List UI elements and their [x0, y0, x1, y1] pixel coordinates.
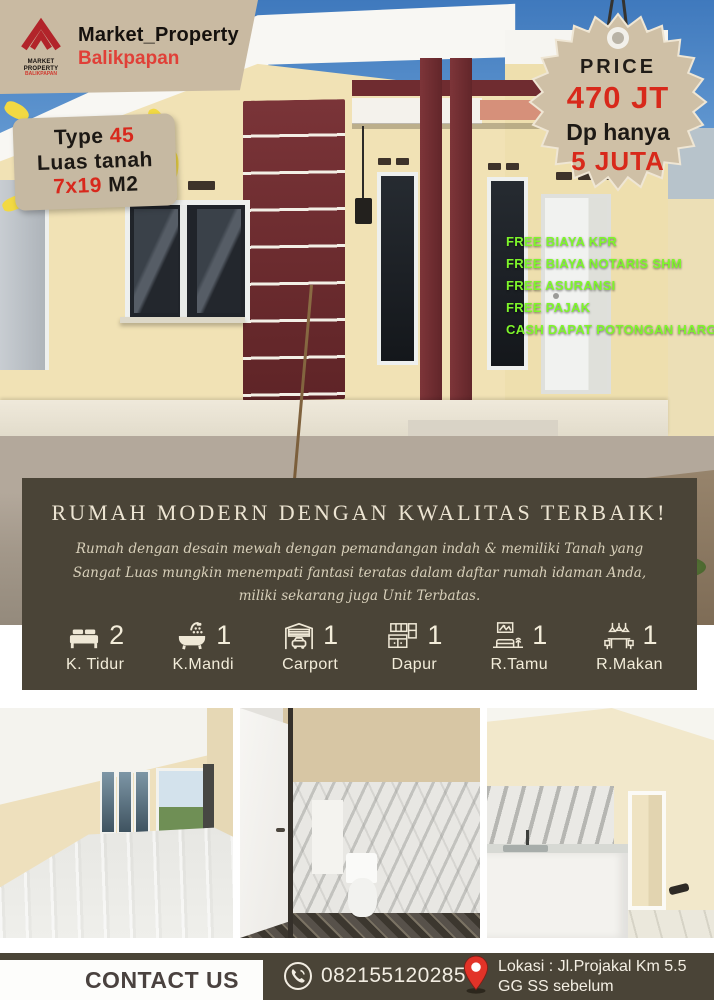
type-label: Type [54, 124, 111, 149]
feature-label: K. Tidur [66, 656, 124, 674]
brand-title: Market_Property [78, 24, 239, 47]
kitchen-photo [487, 708, 714, 938]
brand-logo-plate: MARKET PROPERTY BALIKPAPAN Market_Proper… [0, 0, 258, 94]
phone-row: 082155120285 [283, 961, 466, 991]
wall-panel [312, 800, 343, 874]
electric-meter [355, 198, 372, 224]
vent [378, 158, 391, 165]
door-handle [276, 828, 285, 832]
living-room-photo [0, 708, 233, 938]
window-sill [120, 317, 245, 323]
marble-backsplash [487, 786, 614, 846]
location-line-2: GG SS sebelum [498, 977, 687, 997]
living-room-icon [491, 621, 525, 651]
window [134, 770, 150, 834]
carport-icon [282, 621, 316, 651]
features-row: 2 K. Tidur [66, 620, 663, 674]
free-item: FREE BIAYA NOTARIS SHM [506, 256, 714, 271]
feature-label: R.Makan [596, 656, 663, 674]
feature-label: K.Mandi [172, 656, 234, 674]
dining-room-icon [602, 621, 636, 651]
feature-living-room: 1 R.Tamu [490, 620, 548, 674]
phone-number: 082155120285 [321, 964, 466, 988]
description: Rumah dengan desain mewah dengan pemanda… [60, 538, 659, 609]
wall-plinth [0, 400, 668, 436]
maroon-pillar [420, 58, 442, 410]
feature-count: 2 [109, 620, 124, 651]
feature-label: R.Tamu [490, 656, 548, 674]
feature-carport: 1 Carport [282, 620, 338, 674]
feature-kitchen: 1 Dapur [386, 620, 442, 674]
toilet-bowl [348, 878, 377, 917]
price-label: PRICE [528, 56, 708, 79]
free-item: FREE BIAYA KPR [506, 234, 714, 249]
vent [506, 163, 519, 170]
free-item: FREE ASURANSI [506, 278, 714, 293]
window-pane [134, 209, 178, 313]
feature-count: 1 [532, 620, 547, 651]
location-pin-icon [462, 954, 490, 994]
headline: RUMAH MODERN DENGAN KWALITAS TERBAIK! [22, 500, 697, 526]
land-unit: M2 [102, 173, 139, 197]
slippers [668, 883, 690, 896]
window [100, 770, 116, 834]
price-value: 470 JT [528, 80, 708, 116]
vent [396, 158, 409, 165]
type-badge: Type 45 Luas tanah 7x19 M2 [12, 113, 177, 211]
vent [488, 163, 501, 170]
contact-heading: CONTACT US [85, 967, 239, 994]
location-row: Lokasi : Jl.Projakal Km 5.5 GG SS sebelu… [462, 954, 687, 998]
bed-icon [66, 621, 102, 651]
flyer-page: MARKET PROPERTY BALIKPAPAN Market_Proper… [0, 0, 714, 1000]
price-badge: PRICE 470 JT Dp hanya 5 JUTA [528, 12, 708, 196]
headline-panel: RUMAH MODERN DENGAN KWALITAS TERBAIK! Ru… [22, 478, 697, 690]
interior-photos-row [0, 708, 714, 938]
doorway [628, 791, 667, 911]
phone-icon [283, 961, 313, 991]
contact-bar: CONTACT US 082155120285 Lokasi : Jl.Proj… [0, 953, 714, 1000]
feature-dining-room: 1 R.Makan [596, 620, 663, 674]
house-roof-logo-icon [16, 16, 66, 54]
bathroom-door [240, 708, 288, 938]
vent [188, 181, 215, 190]
feature-label: Dapur [392, 656, 438, 674]
feature-count: 1 [643, 620, 658, 651]
feature-count: 1 [216, 620, 231, 651]
kitchen-sink [503, 845, 548, 852]
window-pane [197, 209, 241, 313]
brand-subtitle: Balikpapan [78, 48, 239, 70]
free-item: CASH DAPAT POTONGAN HARGA & BONUS MENARI… [506, 322, 714, 337]
feature-bedrooms: 2 K. Tidur [66, 620, 124, 674]
type-value: 45 [109, 123, 134, 147]
window [117, 770, 133, 834]
ceiling [487, 708, 714, 754]
window-mullion [180, 205, 187, 317]
maroon-accent-panel [243, 99, 345, 401]
door-gap [288, 708, 293, 938]
maroon-pillar [450, 58, 472, 410]
kitchen-icon [386, 621, 420, 651]
tall-window [377, 172, 418, 365]
feature-label: Carport [282, 656, 338, 674]
logo-caption-sub: BALIKPAPAN [10, 72, 72, 78]
free-benefits-list: FREE BIAYA KPR FREE BIAYA NOTARIS SHM FR… [506, 234, 714, 344]
dp-label: Dp hanya [528, 119, 708, 146]
front-window-pair [125, 200, 250, 322]
counter-front [487, 853, 628, 938]
electric-cable [362, 126, 364, 200]
upper-wall [283, 708, 480, 782]
contact-heading-box: CONTACT US [0, 960, 263, 1000]
bathroom-photo [240, 708, 480, 938]
bath-icon [175, 621, 209, 651]
feature-count: 1 [323, 620, 338, 651]
land-size: 7x19 [53, 174, 102, 199]
feature-bathrooms: 1 K.Mandi [172, 620, 234, 674]
free-item: FREE PAJAK [506, 300, 714, 315]
brand-logo: MARKET PROPERTY BALIKPAPAN [10, 16, 72, 78]
location-line-1: Lokasi : Jl.Projakal Km 5.5 [498, 957, 687, 977]
dp-value: 5 JUTA [528, 146, 708, 177]
feature-count: 1 [427, 620, 442, 651]
faucet [526, 830, 529, 845]
